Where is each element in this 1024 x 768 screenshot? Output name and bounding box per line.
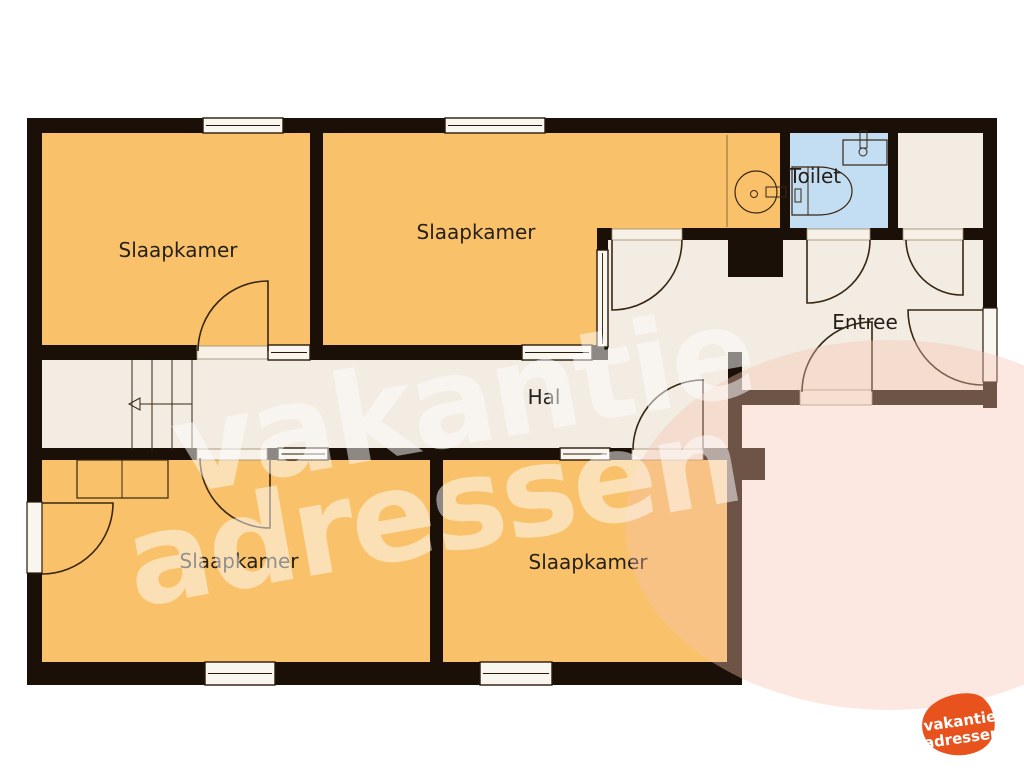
wall bbox=[682, 228, 728, 240]
door-threshold bbox=[807, 229, 870, 240]
floorplan-image: SlaapkamerSlaapkamerSlaapkamerSlaapkamer… bbox=[0, 0, 1024, 768]
door-panel bbox=[27, 502, 42, 573]
wall bbox=[870, 228, 903, 240]
door-threshold bbox=[903, 229, 963, 240]
wall bbox=[728, 228, 783, 277]
floor-plan-svg: SlaapkamerSlaapkamerSlaapkamerSlaapkamer… bbox=[0, 0, 1024, 768]
room-label-slaapkamer-2: Slaapkamer bbox=[417, 220, 537, 244]
room-storage bbox=[891, 128, 990, 234]
room-label-entree: Entree bbox=[832, 310, 898, 334]
room-label-slaapkamer-1: Slaapkamer bbox=[119, 238, 239, 262]
wall bbox=[963, 228, 997, 240]
wall-bottom bbox=[27, 662, 740, 685]
wall bbox=[888, 133, 898, 228]
door-threshold bbox=[197, 346, 268, 359]
floor-plan-layers: SlaapkamerSlaapkamerSlaapkamerSlaapkamer… bbox=[27, 118, 1024, 710]
wall bbox=[42, 345, 197, 360]
wall bbox=[600, 228, 612, 240]
wall-left bbox=[27, 118, 42, 685]
room-label-toilet: Toilet bbox=[788, 164, 841, 188]
wall-divider bbox=[310, 118, 323, 360]
door-threshold bbox=[612, 229, 682, 240]
room-slaapkamer-2-niche bbox=[600, 126, 787, 236]
wall bbox=[783, 228, 807, 240]
